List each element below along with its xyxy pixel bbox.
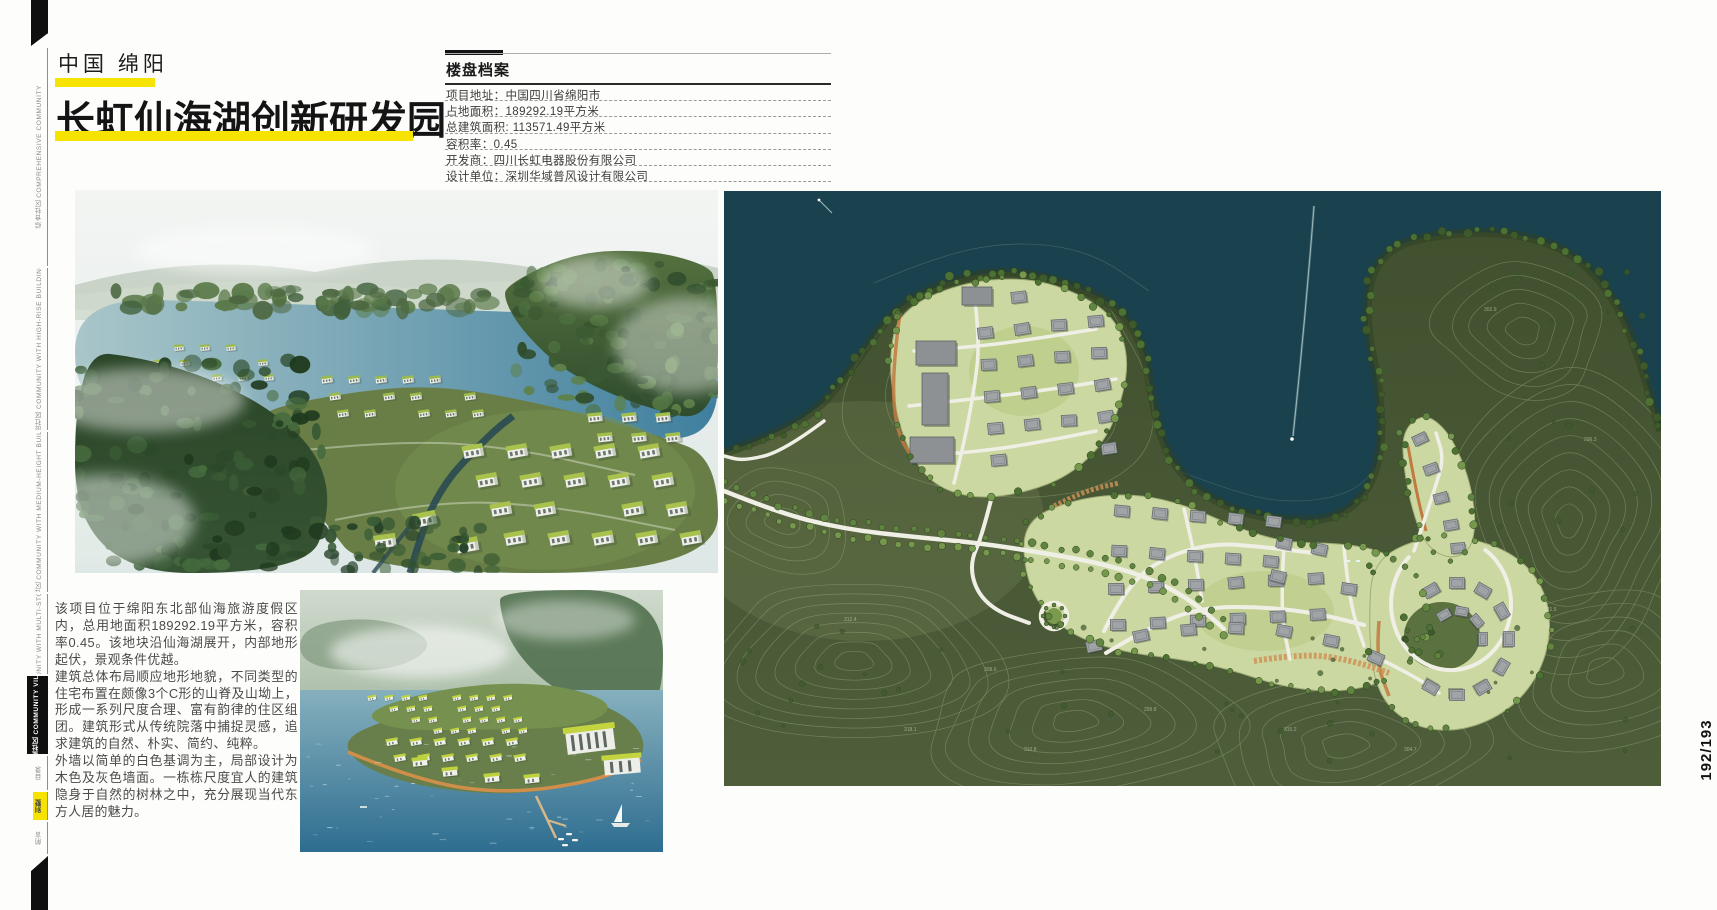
book-spine-index: 综合社区 COMPREHENSIVE COMMUNITY 高层社区 COMMUN… — [28, 0, 48, 910]
svg-text:299.8: 299.8 — [1144, 707, 1157, 713]
svg-text:304.7: 304.7 — [1404, 747, 1417, 753]
yellow-highlight-bar-small — [55, 78, 155, 87]
spine-tab-label: 别墅社区 COMMUNITY VILLA — [34, 676, 41, 754]
aerial-rendering-main-image — [75, 190, 718, 573]
description-paragraph: 外墙以简单的白色基调为主，局部设计为木色及灰色墙面。一栋栋尺度宜人的建筑隐身于自… — [55, 753, 298, 821]
spine-tab-comprehensive: 综合社区 COMPREHENSIVE COMMUNITY — [33, 48, 48, 266]
site-master-plan: 312.4308.6299.8315.2304.7321.5296.3310.8… — [724, 191, 1661, 786]
panel-top-rule — [445, 53, 831, 54]
aerial-rendering-main — [75, 190, 718, 573]
svg-text:321.5: 321.5 — [1544, 607, 1557, 613]
spine-tab-label: 高层社区 COMMUNITY WITH HIGH-RISE BUILDINGS — [37, 268, 44, 430]
description-paragraph: 该项目位于绵阳东北部仙海旅游度假区内，总用地面积189292.19平方米，容积率… — [55, 601, 298, 669]
svg-text:302.9: 302.9 — [1484, 307, 1497, 313]
spine-tab-multistory: 多层社区 COMMUNITY WITH MULTI-STORY BUILDING… — [33, 594, 48, 674]
info-row-developer: 开发商：四川长虹电器股份有限公司 — [445, 150, 831, 166]
project-info-panel: 楼盘档案 项目地址：中国四川省绵阳市 占地面积：189292.19平方米 总建筑… — [445, 48, 831, 182]
aerial-rendering-waterfront-image — [300, 590, 663, 852]
svg-text:310.8: 310.8 — [1024, 747, 1037, 753]
spine-tab-label: 小高层社区 COMMUNITY WITH MEDIUM-HEIGHT BUILD… — [37, 432, 44, 592]
spine-tab-label: 综合社区 COMPREHENSIVE COMMUNITY — [37, 85, 44, 229]
description-paragraph: 建筑总体布局顺应地形地貌，不同类型的住宅布置在颇像3个C形的山脊及山坳上，形成一… — [55, 669, 298, 754]
spine-tab-highrise: 高层社区 COMMUNITY WITH HIGH-RISE BUILDINGS — [33, 268, 48, 430]
yellow-highlight-bar-large — [55, 131, 413, 141]
info-row-floor-area: 总建筑面积: 113571.49平方米 — [445, 117, 831, 133]
spine-tab-label: 前言 — [37, 831, 44, 845]
spine-tab-volume: 别墅 — [33, 792, 48, 820]
info-row-address: 项目地址：中国四川省绵阳市 — [445, 85, 831, 101]
site-master-plan-image: 312.4308.6299.8315.2304.7321.5296.3310.8… — [724, 191, 1661, 786]
spine-tab-label: 别墅 — [37, 799, 44, 813]
spine-tab-villa-active: 别墅社区 COMMUNITY VILLA — [27, 676, 48, 754]
svg-text:315.2: 315.2 — [1284, 727, 1297, 733]
info-row-designer: 设计单位：深圳华域普风设计有限公司 — [445, 166, 831, 182]
info-panel-title: 楼盘档案 — [445, 58, 831, 85]
spine-black-cap-bottom — [31, 856, 48, 910]
project-description: 该项目位于绵阳东北部仙海旅游度假区内，总用地面积189292.19平方米，容积率… — [55, 601, 298, 821]
location-label: 中国 绵阳 — [58, 48, 168, 78]
svg-text:312.4: 312.4 — [844, 617, 857, 623]
info-row-site-area: 占地面积：189292.19平方米 — [445, 101, 831, 117]
spine-tab-midrise: 小高层社区 COMMUNITY WITH MEDIUM-HEIGHT BUILD… — [33, 432, 48, 592]
book-page: 综合社区 COMPREHENSIVE COMMUNITY 高层社区 COMMUN… — [0, 0, 1717, 910]
page-number: 192/193 — [1698, 712, 1717, 788]
svg-text:296.3: 296.3 — [1584, 437, 1597, 443]
aerial-rendering-waterfront — [300, 590, 663, 852]
spine-black-cap-top — [31, 0, 48, 46]
svg-text:318.1: 318.1 — [904, 727, 917, 733]
svg-text:308.6: 308.6 — [984, 667, 997, 673]
spine-tab-label: 多层社区 COMMUNITY WITH MULTI-STORY BUILDING… — [37, 594, 44, 674]
spine-tab-label: 目录 — [37, 766, 44, 780]
spine-tab-contents: 目录 — [33, 756, 48, 790]
info-row-plot-ratio: 容积率：0.45 — [445, 134, 831, 150]
spine-tab-preface: 前言 — [33, 822, 48, 854]
